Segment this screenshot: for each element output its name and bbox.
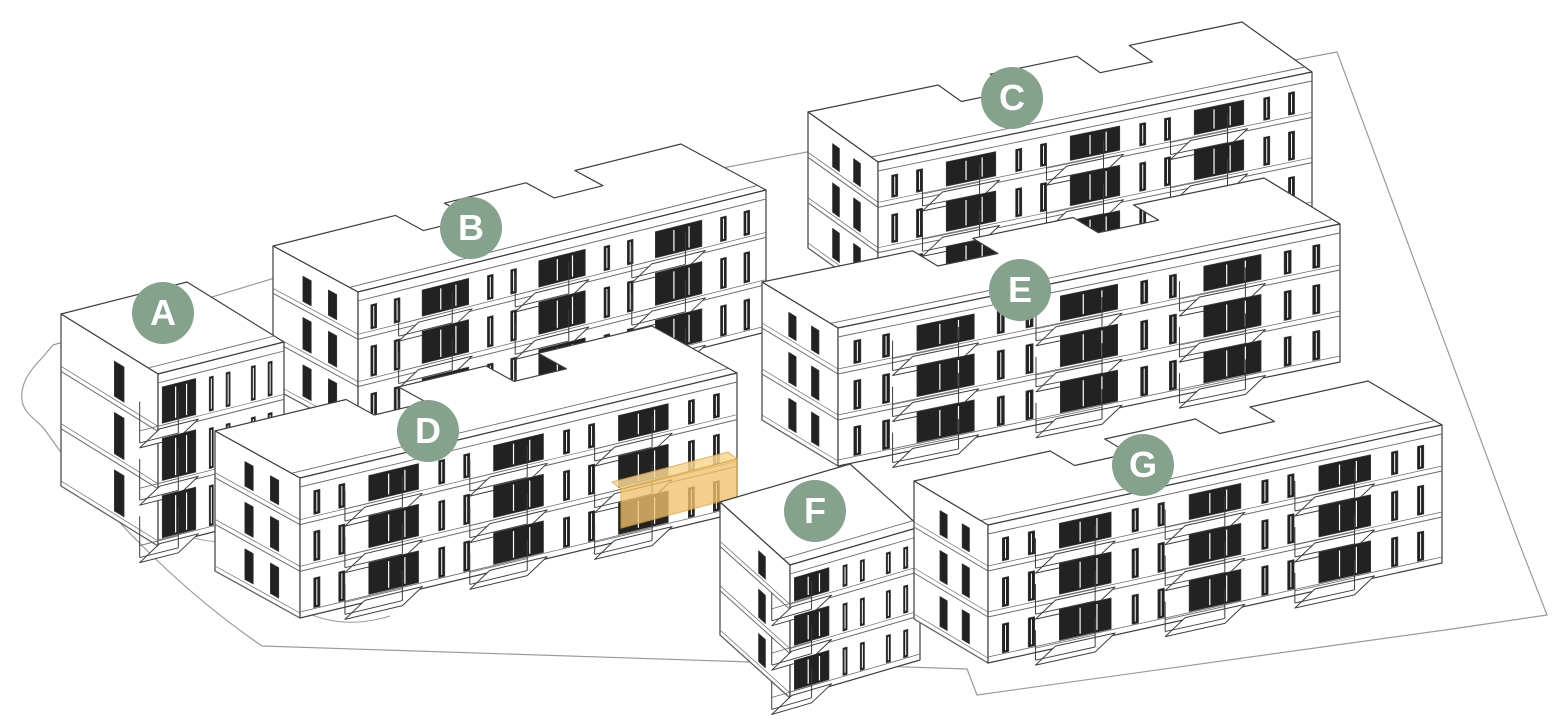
building-badge-d[interactable]: D [397, 400, 459, 462]
building-badge-c[interactable]: C [981, 67, 1043, 129]
building-label-b: B [458, 207, 484, 249]
building-label-f: F [804, 490, 826, 532]
site-plan-drawing [0, 0, 1562, 720]
building-badge-b[interactable]: B [440, 197, 502, 259]
building-label-e: E [1008, 269, 1032, 311]
site-map: A B C D E F G [0, 0, 1562, 720]
building-badge-a[interactable]: A [132, 282, 194, 344]
building-label-a: A [150, 292, 176, 334]
building-badge-f[interactable]: F [784, 480, 846, 542]
building-label-d: D [415, 410, 441, 452]
building-badge-g[interactable]: G [1112, 434, 1174, 496]
building-label-g: G [1129, 444, 1157, 486]
building-label-c: C [999, 77, 1025, 119]
building-badge-e[interactable]: E [989, 259, 1051, 321]
